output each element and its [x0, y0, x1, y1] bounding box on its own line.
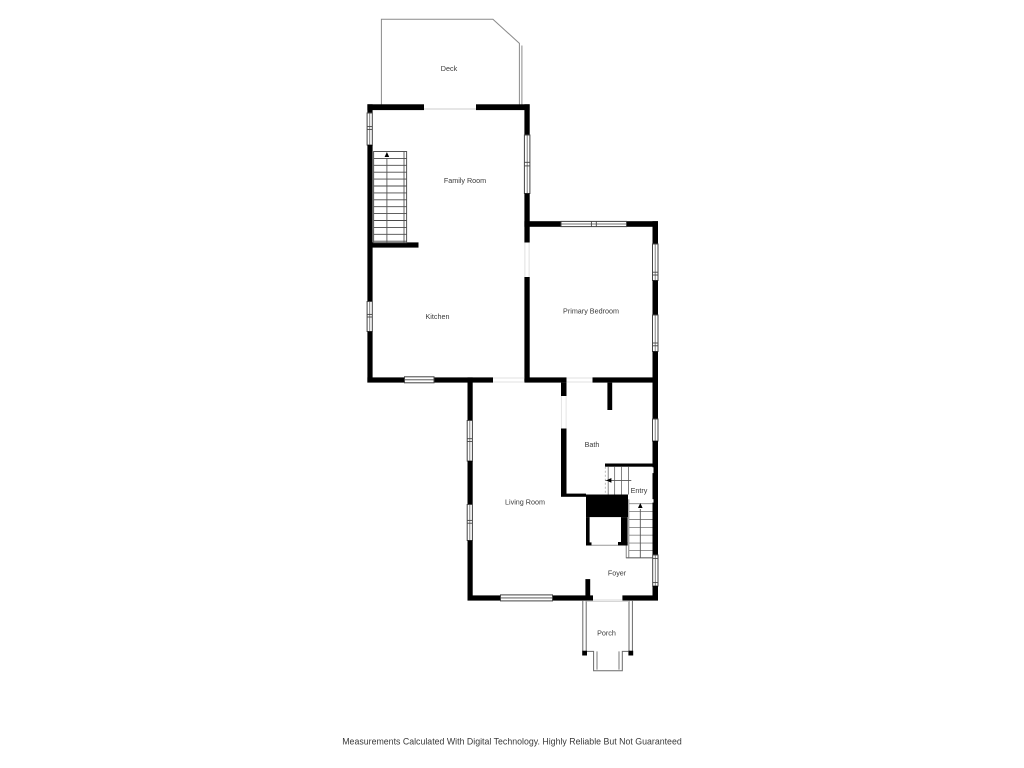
svg-text:Primary Bedroom: Primary Bedroom [563, 306, 619, 315]
svg-text:Porch: Porch [597, 628, 616, 637]
svg-text:Bath: Bath [585, 440, 600, 449]
svg-text:Living Room: Living Room [505, 498, 545, 507]
svg-text:Foyer: Foyer [608, 569, 627, 578]
svg-text:Measurements Calculated With D: Measurements Calculated With Digital Tec… [342, 736, 682, 746]
svg-text:Family Room: Family Room [444, 176, 486, 185]
svg-text:Deck: Deck [441, 64, 458, 73]
svg-text:Entry: Entry [631, 486, 648, 495]
svg-text:Kitchen: Kitchen [426, 312, 450, 321]
